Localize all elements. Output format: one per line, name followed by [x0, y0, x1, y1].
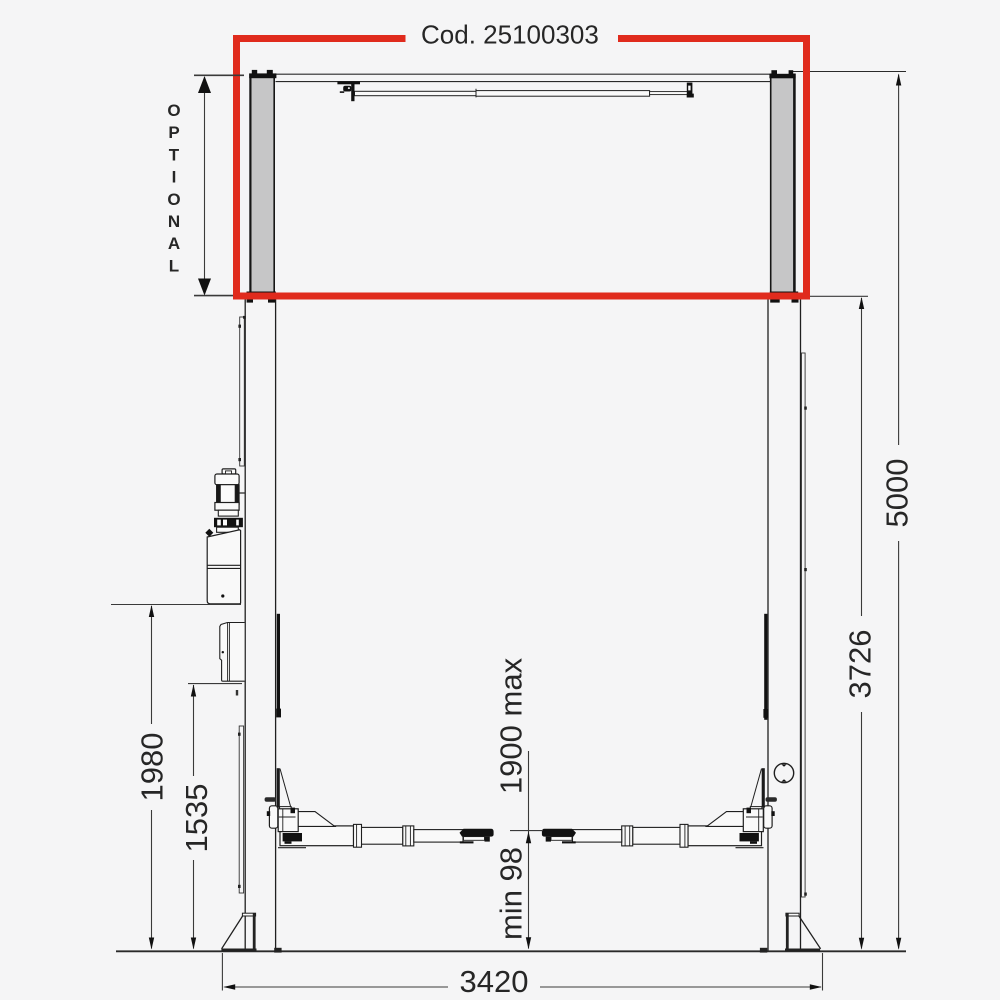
- svg-text:1980: 1980: [134, 733, 169, 802]
- svg-text:3726: 3726: [843, 630, 878, 699]
- svg-text:min 98: min 98: [494, 847, 529, 940]
- svg-text:1535: 1535: [179, 784, 214, 853]
- svg-text:Cod. 25100303: Cod. 25100303: [421, 20, 599, 50]
- svg-text:5000: 5000: [880, 459, 915, 528]
- svg-text:3420: 3420: [460, 964, 529, 999]
- svg-text:1900 max: 1900 max: [494, 657, 529, 794]
